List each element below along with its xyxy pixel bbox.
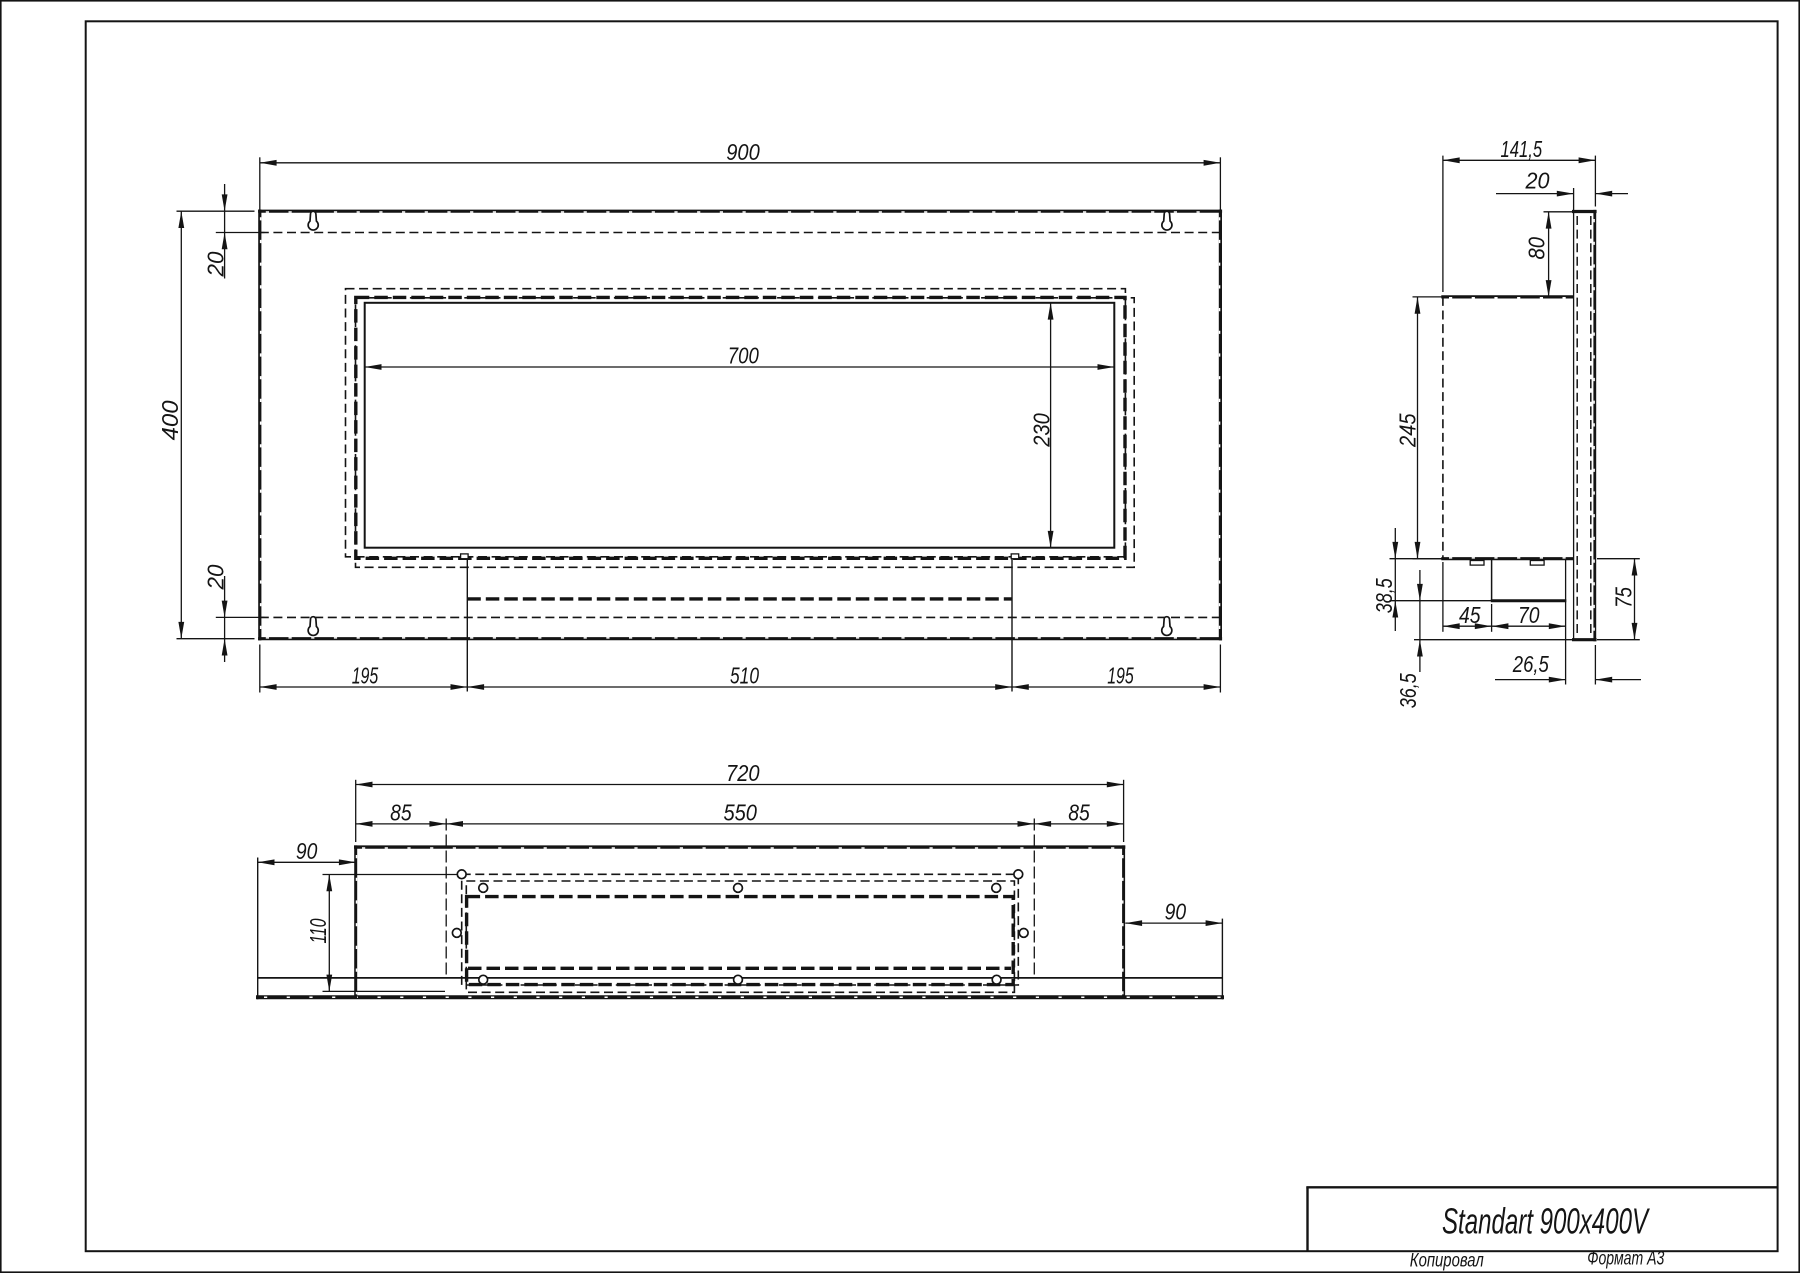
- svg-text:85: 85: [390, 800, 412, 826]
- svg-text:20: 20: [202, 564, 228, 590]
- svg-text:195: 195: [352, 663, 379, 689]
- svg-text:26,5: 26,5: [1512, 651, 1549, 677]
- svg-text:70: 70: [1518, 602, 1540, 628]
- svg-text:36,5: 36,5: [1395, 673, 1421, 708]
- svg-text:38,5: 38,5: [1371, 578, 1397, 613]
- svg-text:75: 75: [1610, 587, 1636, 608]
- svg-text:700: 700: [728, 343, 759, 369]
- svg-text:20: 20: [1525, 168, 1550, 194]
- svg-text:510: 510: [730, 663, 759, 689]
- svg-text:245: 245: [1394, 413, 1420, 448]
- svg-text:550: 550: [723, 800, 757, 826]
- svg-text:Копировал: Копировал: [1410, 1250, 1484, 1272]
- svg-text:90: 90: [296, 838, 318, 864]
- svg-text:400: 400: [157, 400, 183, 440]
- svg-text:Формат А3: Формат А3: [1587, 1248, 1664, 1270]
- svg-text:141,5: 141,5: [1500, 136, 1542, 162]
- svg-text:Standart 900x400V: Standart 900x400V: [1442, 1201, 1650, 1242]
- svg-text:900: 900: [726, 139, 760, 165]
- svg-text:90: 90: [1165, 899, 1187, 925]
- svg-text:230: 230: [1028, 413, 1054, 448]
- svg-text:720: 720: [726, 760, 760, 786]
- svg-text:195: 195: [1107, 663, 1134, 689]
- svg-text:20: 20: [202, 251, 228, 277]
- svg-text:45: 45: [1459, 602, 1481, 628]
- svg-text:110: 110: [305, 918, 331, 943]
- svg-text:80: 80: [1524, 237, 1550, 260]
- svg-text:85: 85: [1068, 800, 1090, 826]
